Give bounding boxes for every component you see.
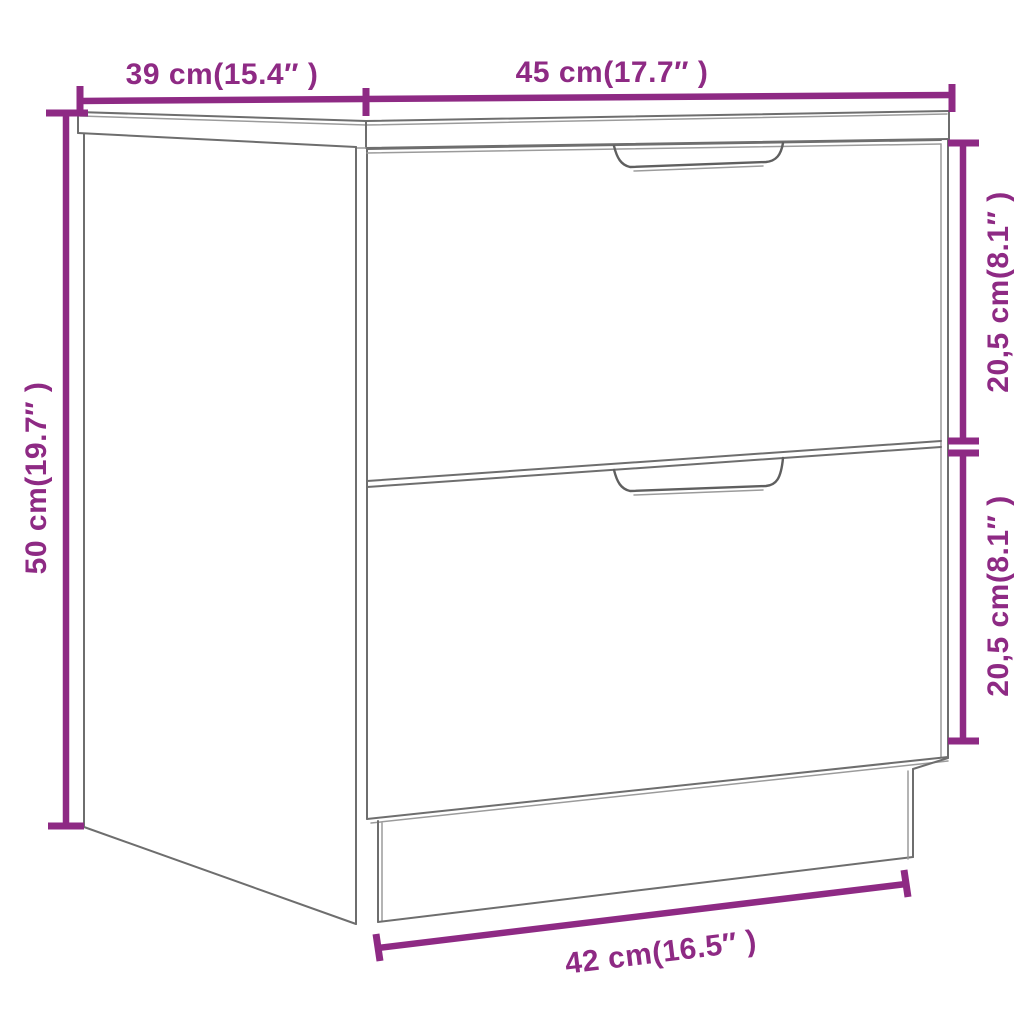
dimension-top: 39 cm(15.4″ ) 45 cm(17.7″ ) [80, 56, 952, 116]
dimension-bottom: 42 cm(16.5″ ) [376, 870, 908, 981]
plinth-bottom-edge [378, 857, 913, 922]
cabinet-front-face [367, 140, 948, 823]
dim-label-height: 50 cm(19.7″ ) [20, 382, 53, 575]
drawer1-top-edge [367, 140, 941, 149]
dimension-right: 20,5 cm(8.1″ ) 20,5 cm(8.1″ ) [948, 143, 1015, 741]
dim-label-width: 45 cm(17.7″ ) [516, 56, 709, 89]
dim-line-top [80, 95, 952, 101]
product-dimension-diagram: 39 cm(15.4″ ) 45 cm(17.7″ ) 50 cm(19.7″ … [0, 0, 1024, 1024]
dim-label-drawer2-height: 20,5 cm(8.1″ ) [982, 495, 1015, 696]
bottom-slab-edge [371, 761, 948, 823]
dim-tick-bottom-right [904, 870, 908, 897]
drawer-divider-upper [367, 441, 941, 481]
cabinet-drawing [78, 111, 949, 924]
dim-tick-bottom-left [376, 934, 380, 961]
cabinet-plinth [378, 758, 948, 922]
drawer2-bottom-edge [367, 757, 948, 819]
side-panel-bottom-edge [84, 827, 356, 924]
drawer-divider-lower [367, 447, 941, 487]
dim-label-depth: 39 cm(15.4″ ) [126, 58, 319, 91]
dim-label-plinth-width: 42 cm(16.5″ ) [563, 924, 758, 980]
dim-label-drawer1-height: 20,5 cm(8.1″ ) [982, 191, 1015, 392]
cabinet-side-panel [84, 134, 356, 924]
top-panel-lower-edge-left [78, 133, 356, 147]
dimension-annotations: 39 cm(15.4″ ) 45 cm(17.7″ ) 50 cm(19.7″ … [20, 56, 1015, 981]
dimension-left: 50 cm(19.7″ ) [20, 113, 88, 826]
dimension-diagram-svg: 39 cm(15.4″ ) 45 cm(17.7″ ) 50 cm(19.7″ … [0, 0, 1024, 1024]
